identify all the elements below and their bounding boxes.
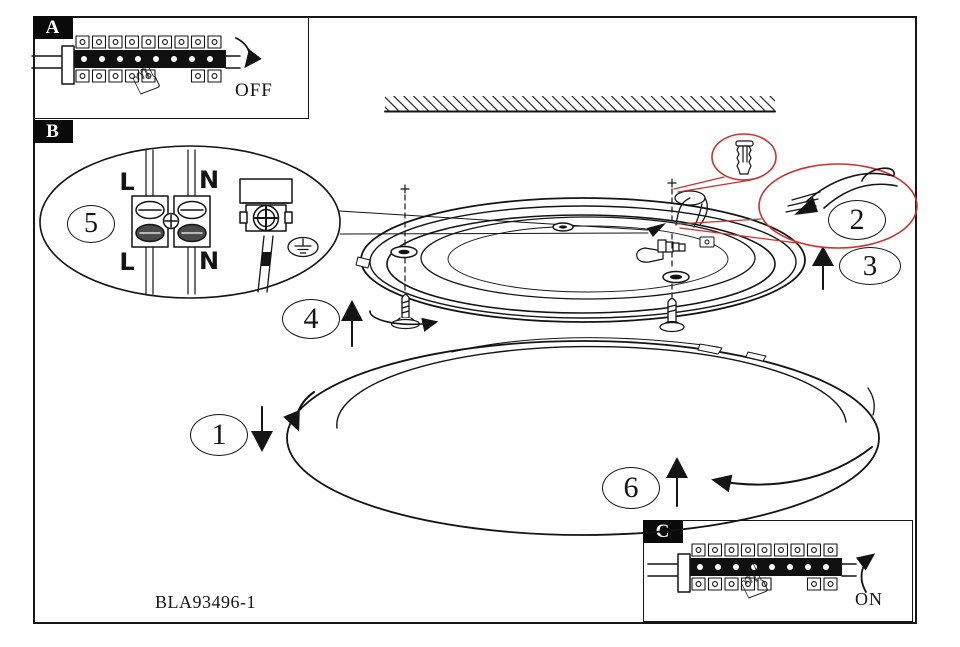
cable-clamp-detail — [240, 179, 292, 231]
instruction-sheet: A B C — [0, 0, 960, 647]
step-1-badge: 1 — [190, 414, 248, 456]
part-number: BLA93496-1 — [155, 592, 256, 613]
ceiling-hatch — [385, 96, 775, 112]
wire-label-live-top: L — [114, 170, 140, 194]
step-3-badge: 3 — [839, 247, 901, 285]
step-arrows — [251, 246, 872, 506]
cable-bracket — [637, 240, 685, 262]
off-text: OFF — [235, 80, 273, 102]
wire-label-live-bottom: L — [114, 250, 140, 274]
off-direction-arrow — [236, 38, 250, 66]
fixing-screw-right — [660, 299, 684, 332]
on-direction-arrow — [862, 555, 873, 592]
step-6-badge: 6 — [602, 467, 660, 509]
step-4-number: 4 — [304, 302, 319, 336]
earth-symbol-icon — [288, 238, 318, 257]
diffuser-dome — [287, 338, 879, 535]
step-2-badge: 2 — [828, 200, 886, 240]
step-4-badge: 4 — [282, 299, 340, 339]
on-text: ON — [855, 589, 883, 610]
step-3-number: 3 — [863, 250, 878, 283]
wire-label-neutral-bottom: N — [196, 249, 222, 273]
step-6-number: 6 — [624, 471, 639, 505]
step-1-number: 1 — [212, 418, 227, 452]
mounting-plate — [356, 191, 805, 322]
step-5-number: 5 — [84, 208, 98, 240]
screw-axis-left — [401, 185, 409, 292]
step-5-badge: 5 — [67, 205, 115, 243]
step-2-number: 2 — [850, 203, 865, 237]
wire-label-neutral-top: N — [196, 168, 222, 192]
